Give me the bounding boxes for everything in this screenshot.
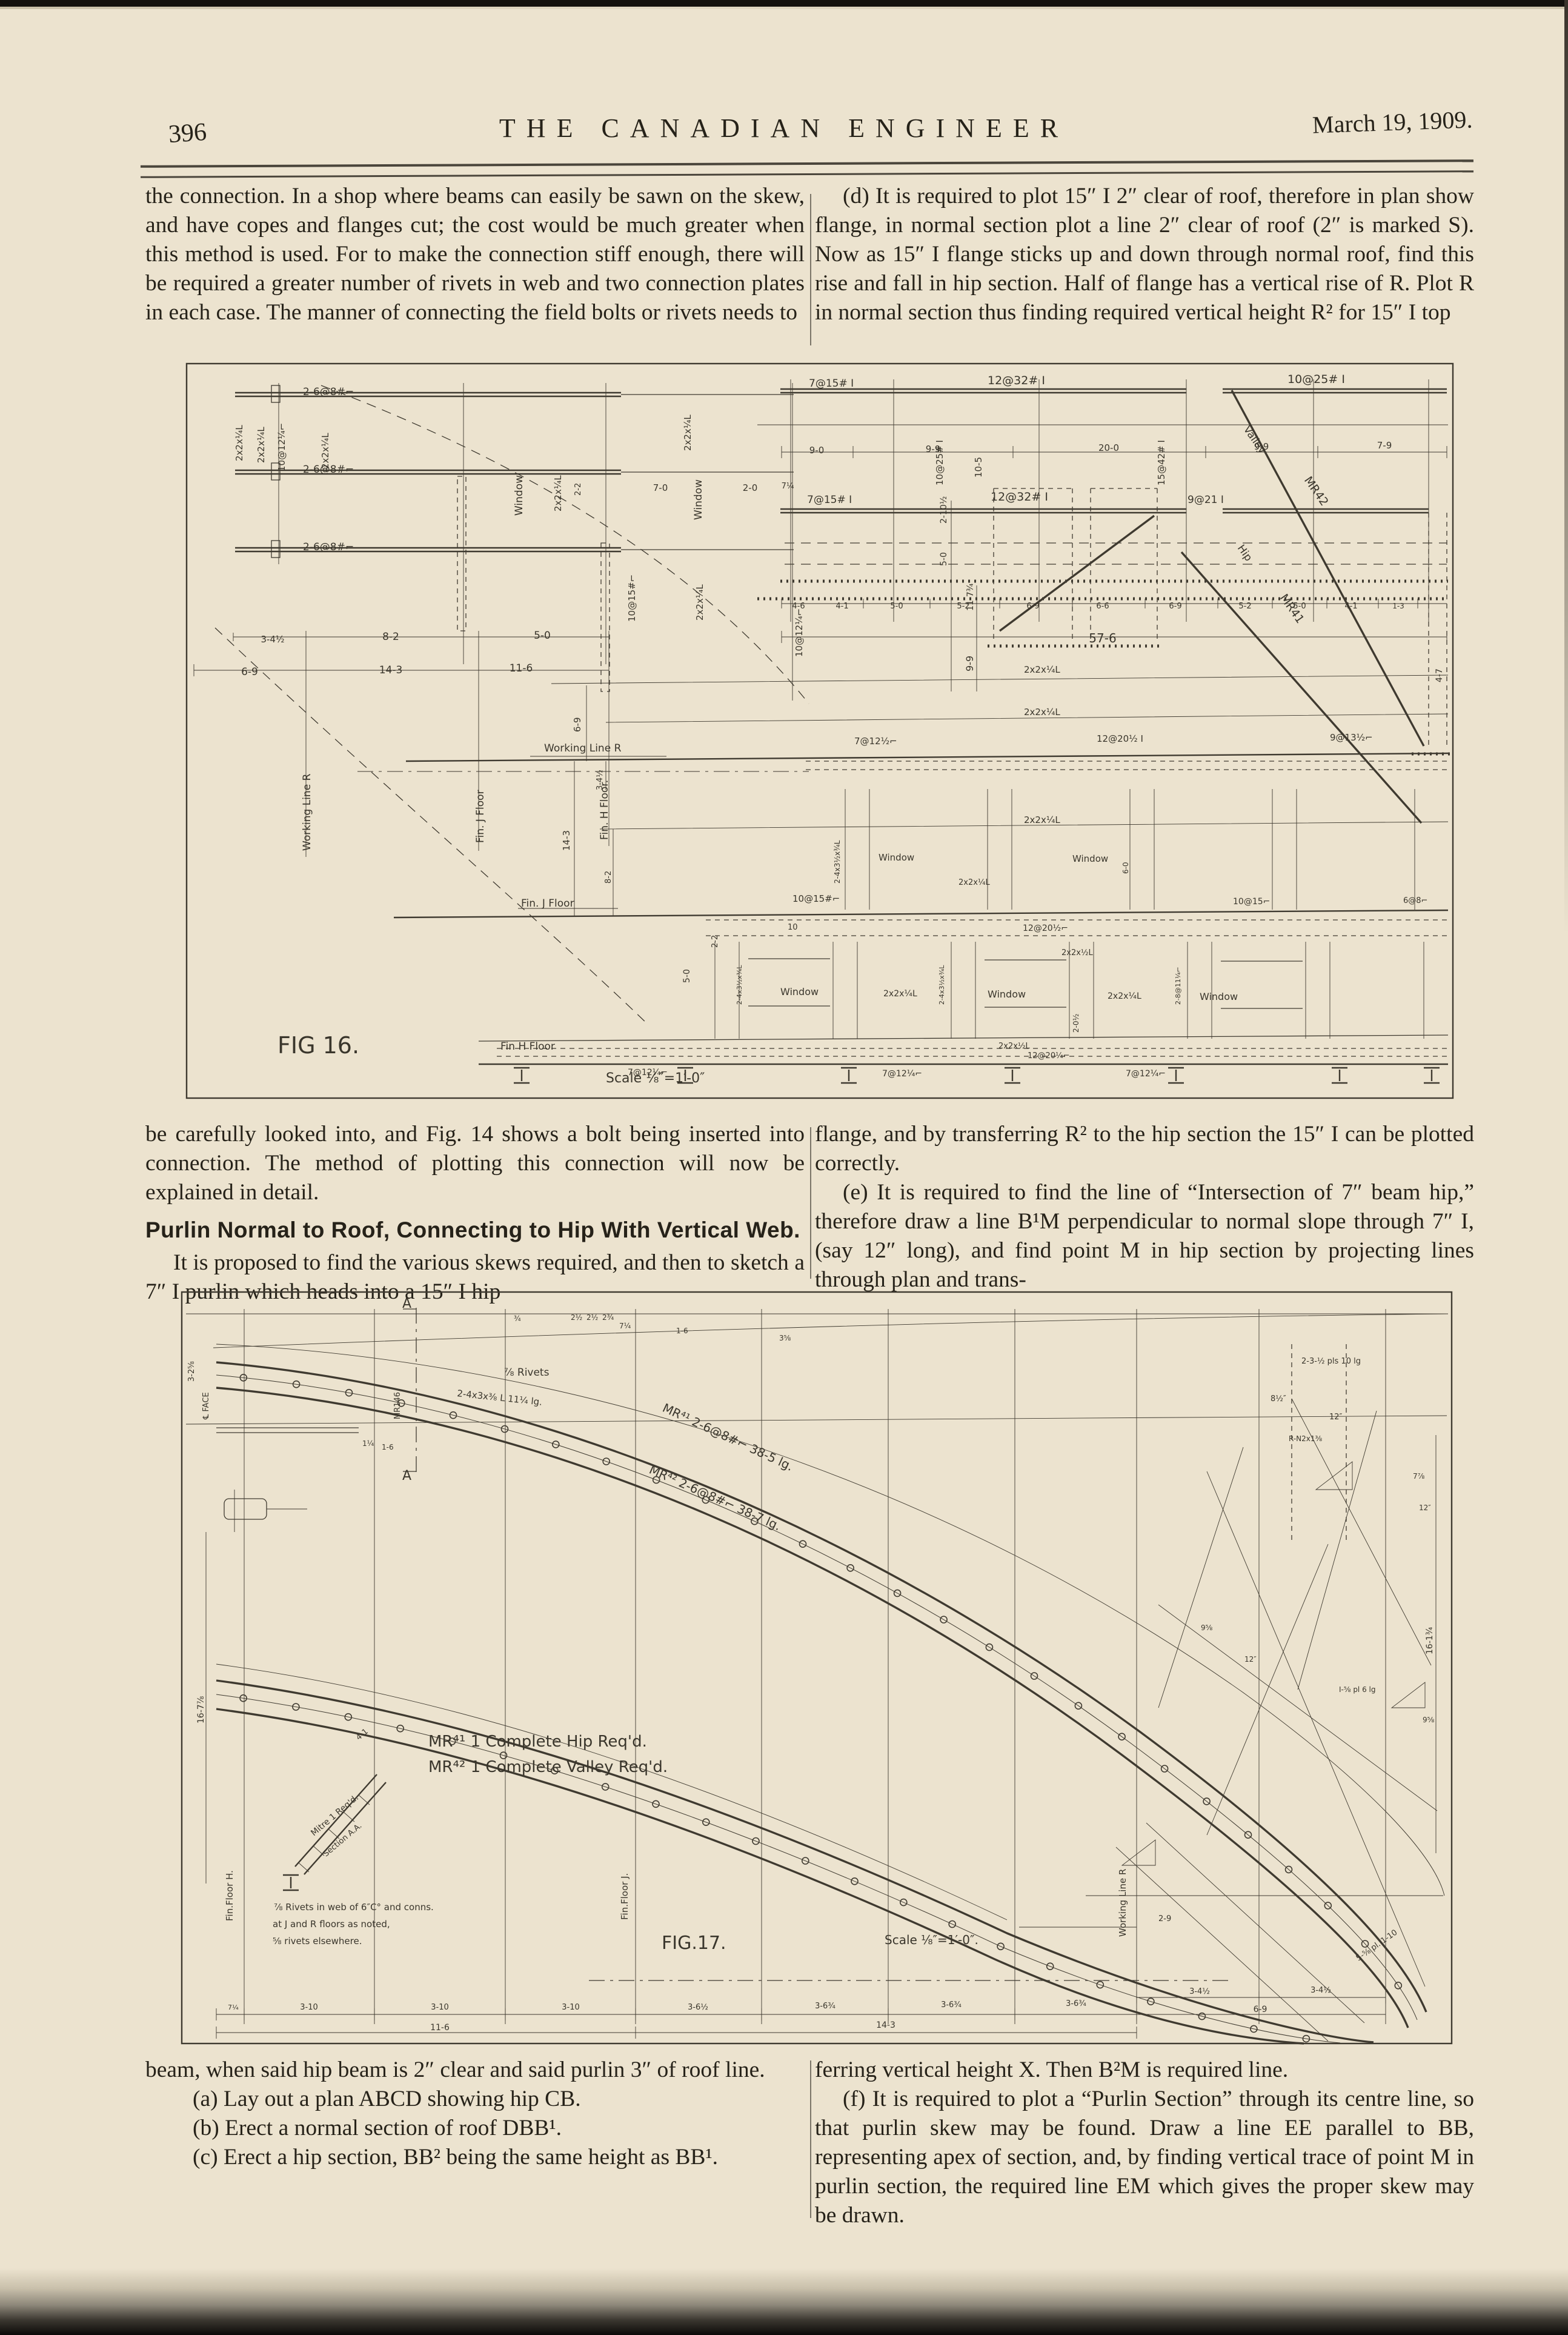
fig-label: 16-1¾ [1425, 1627, 1435, 1654]
fig-label: Fin.Floor H. [224, 1870, 235, 1921]
fig-label: 4-6 [792, 602, 805, 611]
paragraph: the connection. In a shop where beams ca… [145, 182, 805, 327]
fig-label: 6-9 [241, 666, 258, 678]
fig-label: I-⅝ pl 6 lg [1339, 1685, 1375, 1694]
scan-edge-top-highlight [0, 7, 1568, 9]
fig-label: 5-0 [890, 602, 903, 611]
header-rule [141, 159, 1473, 178]
fig-label: 1-3 [1392, 602, 1404, 610]
fig-label: 12@20½⌐ [1023, 924, 1068, 933]
fig-label: 7¼ [619, 1322, 631, 1330]
paragraph: be carefully looked into, and Fig. 14 sh… [145, 1120, 805, 1207]
fig-label: 8-2 [604, 871, 613, 884]
paragraph: beam, when said hip beam is 2″ clear and… [145, 2056, 805, 2085]
fig-label: 3-6¾ [815, 2002, 835, 2011]
fig-label: 2-2 [574, 483, 583, 496]
fig-label: 12@32# I [991, 490, 1048, 504]
fig-label: 2x2x¼L [553, 475, 563, 511]
fig-label: 2-9 [1158, 1914, 1171, 1924]
page: 396 THE CANADIAN ENGINEER March 19, 1909… [0, 0, 1568, 2335]
fig-label: 2x2x¼L [883, 989, 917, 999]
fig-label: ⅝ rivets elsewhere. [273, 1936, 362, 1947]
fig-label: 12@20½ I [1097, 733, 1143, 744]
section-heading: Purlin Normal to Roof, Connecting to Hip… [145, 1216, 805, 1245]
fig-label: 14-3 [379, 664, 403, 676]
fig-label: Window [1072, 853, 1108, 864]
fig-label: 5-0 [1293, 602, 1306, 611]
fig-label: 2-2 [711, 935, 720, 948]
fig-label: 2-3-½ pls 10 lg [1301, 1357, 1361, 1366]
fig-label: 1¼ [362, 1439, 374, 1448]
fig-label: Fin. J Floor [474, 790, 487, 843]
fig-label: 8½″ [1271, 1394, 1286, 1404]
fig-label: 4-1 [835, 602, 848, 611]
fig-label: 3-6¾ [941, 2000, 962, 2010]
fig-label: 9-9 [926, 444, 941, 455]
fig-label: at J and R floors as noted, [273, 1919, 390, 1930]
paragraph: ferring vertical height X. Then B²M is r… [815, 2056, 1474, 2085]
fig-label: 9⅝ [1201, 1624, 1213, 1632]
fig-label: MR42 [1301, 474, 1331, 508]
fig-label: Window [513, 475, 525, 516]
fig-label: Working Line R [1117, 1869, 1128, 1937]
fig-label: 2x2x¼L [958, 878, 991, 887]
fig-label: 2x2x½L [1061, 948, 1094, 958]
column-top-left: the connection. In a shop where beams ca… [145, 182, 805, 327]
fig-label: 3-2⅝ [187, 1361, 196, 1382]
fig-label: 11-6 [510, 662, 533, 675]
fig-label: 5-2 [957, 602, 969, 611]
fig-label: 2-8@11¼⌐ [1174, 967, 1182, 1005]
fig-label: Window [988, 988, 1026, 1000]
fig-label: 3-6½ [688, 2003, 708, 2012]
fig-label: 2½ [571, 1313, 582, 1322]
fig-label: 12@20¼⌐ [1028, 1051, 1070, 1061]
fig-label: 2-4x3½x¾L [938, 965, 946, 1005]
fig-label: 5-0 [534, 630, 551, 642]
fig-label: 2x2x¼L [1108, 991, 1141, 1001]
fig-label: 6-9 [1169, 602, 1181, 611]
fig-label: 11-6 [430, 2023, 450, 2033]
fig-label: Window [693, 479, 705, 520]
fig-label: 4-7 [1435, 668, 1444, 682]
fig-label: Fin. J Floor [521, 898, 574, 910]
fig-label: 2-0 [743, 482, 758, 493]
column-mid-left: be carefully looked into, and Fig. 14 sh… [145, 1120, 805, 1307]
fig-label: 7@12¼⌐ [882, 1069, 922, 1079]
fig-label: MR⁴¹ 1 Complete Hip Req'd. [428, 1733, 647, 1751]
fig-label: Scale ⅛″=1′-0″. [885, 1933, 978, 1947]
fig-label: 2-4x3½x¾L [833, 840, 842, 884]
column-bottom-left: beam, when said hip beam is 2″ clear and… [145, 2056, 805, 2172]
fig-label: 5-2 [1238, 602, 1251, 611]
fig-label: 14-3 [876, 2020, 895, 2030]
fig-label: 2-10½ [939, 496, 949, 524]
fig-label: 20-0 [1098, 442, 1119, 453]
fig-label: Working Line R [301, 773, 313, 851]
fig-label: 3-10 [431, 2003, 449, 2012]
fig-label: 10@15#⌐ [792, 893, 840, 904]
fig-label: FIG.17. [662, 1933, 726, 1954]
fig-label: 5-0 [939, 552, 949, 566]
fig-label: 2-6@8#⌐ [303, 386, 354, 398]
issue-date: March 19, 1909. [1312, 105, 1473, 139]
fig-label: 7¼ [782, 482, 794, 491]
paragraph: (f) It is required to plot a “Purlin Sec… [815, 2085, 1474, 2230]
fig-label: 12@32# I [988, 374, 1045, 387]
fig-label: 10@25# I [1287, 373, 1345, 386]
fig-label: 4-1 [354, 1727, 370, 1742]
figure-16-drawing: 2-6@8#⌐2x2x¼L2x2x¼L10@12¼⌐2-6@8#⌐2x2x¼L2… [182, 361, 1458, 1102]
fig-label: 2½ [586, 1313, 598, 1322]
figure-17: AA℄ FACE3-2⅝¾2½2½2¾7¼1-63⅝MR1461¼1-6⅞ Ri… [177, 1290, 1457, 2048]
fig-label: 3-4½ [261, 634, 284, 645]
column-mid-right: flange, and by transferring R² to the hi… [815, 1120, 1474, 1294]
fig-label: 10@15⌐ [1233, 897, 1270, 907]
fig-label: 7-9 [1377, 440, 1392, 451]
fig-label: A [402, 1296, 411, 1311]
column-divider [810, 1127, 811, 1279]
fig-label: 10-5 [973, 457, 984, 478]
list-item: (a) Lay out a plan ABCD showing hip CB. [145, 2085, 805, 2114]
paragraph: (d) It is required to plot 15″ I 2″ clea… [815, 182, 1474, 327]
fig-label: Window [1200, 991, 1238, 1002]
fig-label: 2x2x¼L [256, 427, 267, 463]
fig-label: ⅞ Rivets in web of 6″C° and conns. [274, 1902, 434, 1913]
fig-label: 3⅝ [779, 1334, 791, 1342]
fig-label: 12″ [1419, 1504, 1431, 1512]
fig-label: ¾ [514, 1314, 521, 1323]
column-top-right: (d) It is required to plot 15″ I 2″ clea… [815, 182, 1474, 327]
list-item: (c) Erect a hip section, BB² being the s… [145, 2143, 805, 2172]
fig-label: 10 [788, 923, 798, 932]
fig-label: ⅞ Rivets [504, 1367, 550, 1379]
fig-label: 4-1 [1344, 602, 1357, 611]
fig-label: 6-0 [1121, 862, 1130, 874]
figure-16: 2-6@8#⌐2x2x¼L2x2x¼L10@12¼⌐2-6@8#⌐2x2x¼L2… [182, 361, 1458, 1102]
fig-label: Fin.Floor J. [619, 1873, 630, 1920]
fig-label: MR⁴² 1 Complete Valley Req'd. [428, 1758, 668, 1776]
fig-label: 12″ [1244, 1655, 1257, 1664]
fig-label: 3-4½ [596, 770, 605, 790]
scan-edge-bottom [0, 2268, 1568, 2335]
fig-label: 7@12¼⌐ [1126, 1069, 1166, 1079]
fig-label: MR146 [393, 1392, 402, 1419]
list-item: (b) Erect a normal section of roof DBB¹. [145, 2114, 805, 2143]
fig-label: 2-4x3x⅜ L 11¼ lg. [457, 1388, 543, 1408]
column-divider [810, 194, 811, 345]
fig-label: 2x2x¼L [694, 584, 705, 621]
fig-label: Window [780, 986, 819, 998]
fig-label: 7¼ [228, 2004, 239, 2011]
fig-label: A [402, 1468, 411, 1484]
paragraph: (e) It is required to find the line of “… [815, 1178, 1474, 1294]
fig-label: 2x2x¼L [1024, 664, 1060, 675]
fig-label: 2x2x¼L [234, 425, 245, 461]
fig-label: 9@13½⌐ [1330, 732, 1373, 743]
fig-label: 10@12¼⌐ [276, 423, 287, 471]
fig-label: 10@12¼⌐ [794, 608, 805, 657]
fig-label: 15@42# I [1156, 440, 1167, 485]
fig-label: 7@12½⌐ [854, 736, 897, 747]
fig-label: 2x2x¼L [1024, 814, 1060, 825]
fig-label: FIG 16. [277, 1032, 359, 1059]
fig-label: 2-0½ [1072, 1014, 1080, 1033]
fig-label: 16-7⅞ [196, 1696, 206, 1724]
fig-label: 7-0 [653, 482, 668, 493]
fig-label: 2-4x3½x¾L [736, 965, 743, 1005]
scan-edge-top [0, 0, 1568, 7]
fig-label: 9-9 [964, 656, 975, 671]
fig-label: 57-6 [1089, 631, 1116, 645]
fig-label: 2-6@8#⌐ [303, 541, 354, 553]
column-divider [810, 2060, 811, 2218]
fig-label: ℄ FACE [202, 1392, 211, 1420]
fig-label: 3-6¾ [1066, 1999, 1086, 2008]
fig-label: 7⅞ [1413, 1472, 1425, 1481]
fig-label: 12″ [1329, 1413, 1343, 1422]
fig-label: 7@15# I [807, 494, 852, 506]
fig-label: 3-4½ [1311, 1986, 1331, 1995]
fig-label: 3-10 [562, 2003, 580, 2012]
fig-label: 6-9 [1254, 2005, 1267, 2014]
fig-label: 8-2 [382, 631, 399, 643]
fig-label: 6@8⌐ [1403, 896, 1427, 905]
fig-label: Hip [1235, 542, 1255, 564]
fig-label: 7@15# I [809, 378, 854, 390]
fig-label: 3-4½ [1189, 1987, 1210, 1996]
fig-label: 6-6 [1096, 602, 1109, 611]
fig-label: Window [879, 852, 914, 863]
column-bottom-right: ferring vertical height X. Then B²M is r… [815, 2056, 1474, 2230]
paragraph: flange, and by transferring R² to the hi… [815, 1120, 1474, 1178]
fig-label: 2x2x½L [998, 1042, 1031, 1051]
fig-label: 9-0 [809, 445, 825, 456]
fig-label: 3-10 [300, 2003, 318, 2012]
fig-label: 6-9 [1026, 602, 1039, 611]
fig-label: 9@21 I [1188, 494, 1224, 506]
fig-label: 10@15#⌐ [626, 575, 637, 622]
fig-label: 14-3 [561, 830, 572, 851]
fig-label: 2x2x¼L [1024, 707, 1060, 718]
fig-label: R-N2x1⅜ [1289, 1434, 1323, 1443]
fig-label: 2x2x¼L [320, 433, 331, 469]
fig-label: 9⅝ [1423, 1716, 1435, 1724]
fig-label: 1-6 [676, 1327, 688, 1335]
fig-label: 2x2x¼L [682, 415, 693, 451]
fig-label: Scale ⅛″=1′-0″ [606, 1071, 705, 1086]
figure-17-drawing: AA℄ FACE3-2⅝¾2½2½2¾7¼1-63⅝MR1461¼1-6⅞ Ri… [177, 1290, 1457, 2048]
fig-label: 5-0 [682, 969, 692, 983]
fig-label: Working Line R [544, 742, 622, 754]
fig-label: 6-9 [572, 718, 583, 733]
fig-label: MR⁴¹ 2-6@8#⌐ 38-5 lg. [660, 1401, 796, 1474]
fig-label: 1-6 [382, 1443, 394, 1451]
fig-label: 2¾ [602, 1313, 614, 1322]
fig-label: Fin H Floor [500, 1041, 555, 1053]
